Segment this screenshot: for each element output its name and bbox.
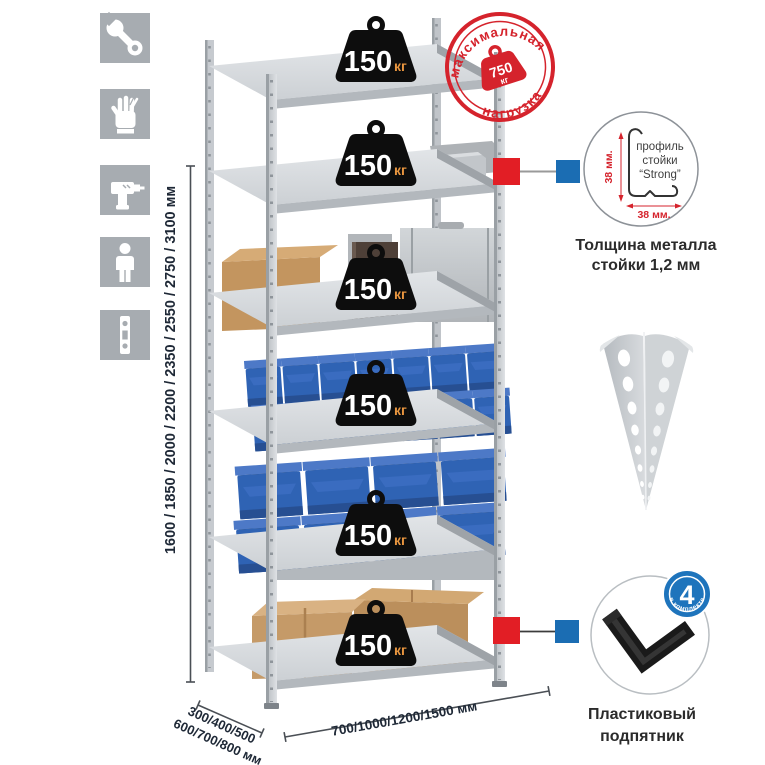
shelving-rack-illustration: 150 кг (0, 0, 765, 765)
infographic-canvas: 150 кг (0, 0, 765, 765)
profile-label-line3: “Strong” (639, 169, 681, 181)
profile-caption-line1: Толщина металла (575, 237, 716, 254)
wrench-icon (100, 12, 150, 63)
profile-label-line1: профиль (636, 141, 684, 153)
rack-post-front-right (492, 52, 507, 687)
foot-caption-line1: Пластиковый (588, 706, 696, 723)
upright-profile-icon (100, 310, 150, 360)
rack (205, 18, 513, 709)
upright-post-photo (600, 332, 693, 510)
profile-dim-horizontal: 38 мм. (637, 209, 670, 221)
drill-icon (100, 165, 150, 215)
rack-post-front-left (264, 74, 279, 709)
red-marker-square (493, 617, 520, 644)
blue-marker-square (555, 620, 579, 643)
rack-post-back-left (205, 40, 214, 672)
gloves-icon (100, 89, 150, 139)
max-load-stamp: максимальная нагрузка 750 кг (432, 0, 568, 135)
red-marker-square (493, 158, 520, 185)
height-dimension: 1600 / 1850 / 2000 / 2200 / 2350 / 2550 … (163, 166, 195, 682)
profile-callout: 38 мм. 38 мм. профиль стойки “Strong” То… (575, 112, 716, 274)
depth-dimension: 300/400/500 600/700/800 мм (171, 700, 264, 765)
foot-callout: 4 в комплекте Пластиковый подпятник (588, 570, 711, 745)
callout-connector-foot (493, 617, 579, 644)
height-options-label: 1600 / 1850 / 2000 / 2200 / 2350 / 2550 … (163, 186, 179, 554)
foot-caption-line2: подпятник (600, 728, 685, 745)
person-icon (100, 237, 150, 287)
profile-caption-line2: стойки 1,2 мм (592, 257, 701, 274)
callout-connector-profile (493, 158, 580, 185)
blue-marker-square (556, 160, 580, 183)
stamp-arc-bottom-text: нагрузка (477, 84, 549, 129)
assembly-icon-list (100, 12, 150, 360)
quantity-badge: 4 в комплекте (663, 570, 711, 618)
profile-dim-vertical: 38 мм. (603, 150, 615, 183)
width-options-label: 700/1000/1200/1500 мм (330, 698, 478, 738)
profile-label-line2: стойки (642, 155, 677, 167)
svg-text:нагрузка: нагрузка (477, 84, 549, 129)
width-dimension: 700/1000/1200/1500 мм (284, 686, 550, 742)
